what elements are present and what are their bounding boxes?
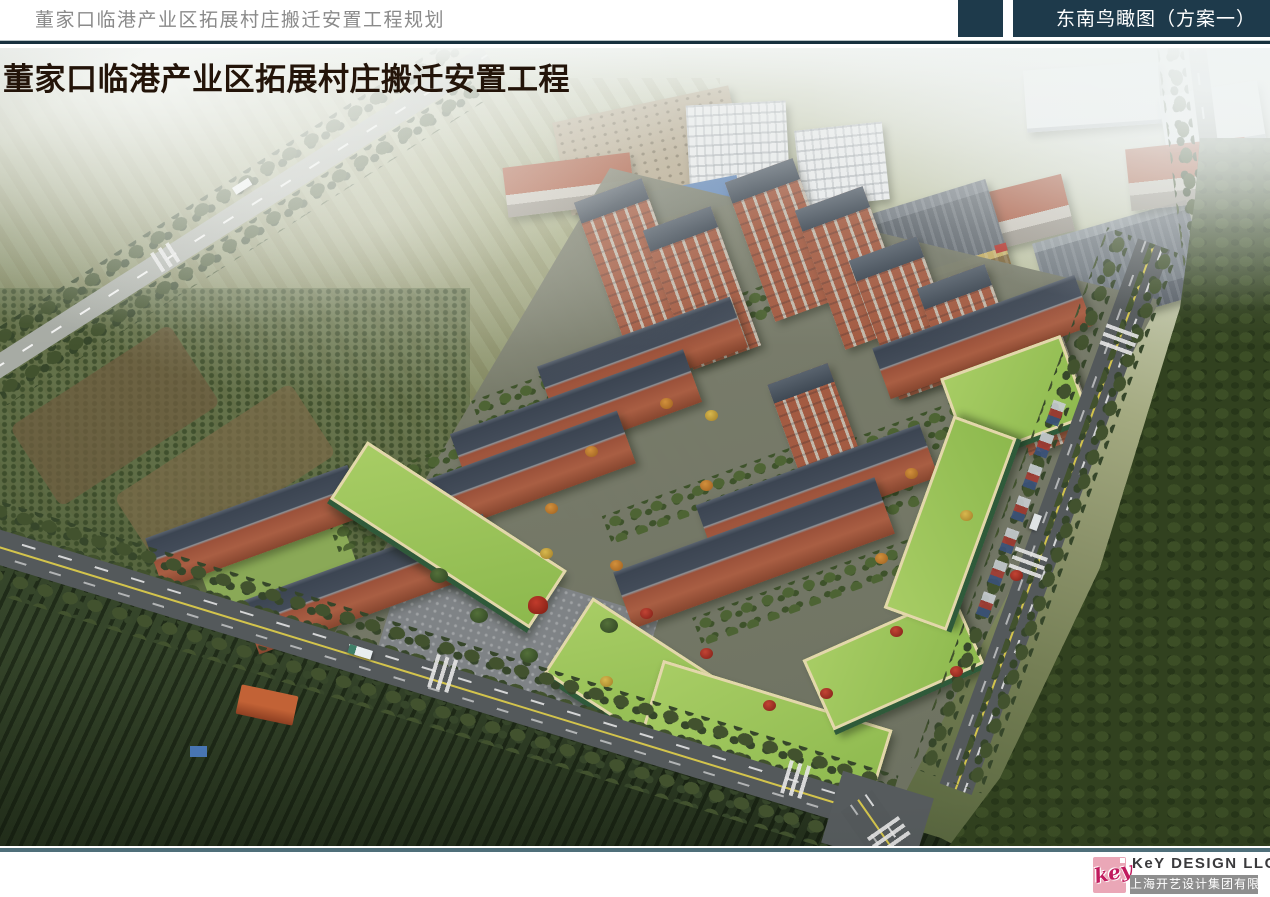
tree (700, 480, 713, 491)
header-accent-square (958, 0, 1003, 37)
tree (545, 503, 558, 514)
footer-rule (0, 848, 1270, 852)
tree (610, 560, 623, 571)
logo-word: key (1092, 858, 1129, 888)
tree (640, 608, 653, 619)
company-name-cn: 上海开艺设计集团有限公司 (1130, 875, 1258, 894)
tree (820, 688, 833, 699)
warehouse (1023, 61, 1162, 132)
page-title: 董家口临港产业区拓展村庄搬迁安置工程 (3, 54, 570, 99)
tree (520, 648, 538, 663)
view-label: 东南鸟瞰图（方案一） (1013, 0, 1270, 37)
tree (905, 468, 918, 479)
document-title: 董家口临港产业区拓展村庄搬迁安置工程规划 (35, 0, 445, 40)
tree (600, 618, 618, 633)
tree (470, 608, 488, 623)
entrance-gate-feature (528, 596, 548, 614)
tree (705, 410, 718, 421)
blue-shed (190, 746, 207, 757)
tree (540, 548, 553, 559)
tree (1010, 570, 1023, 581)
tree (700, 648, 713, 659)
presentation-slide: 董家口临港产业区拓展村庄搬迁安置工程规划 东南鸟瞰图（方案一） (0, 0, 1270, 897)
aerial-rendering: 董家口临港产业区拓展村庄搬迁安置工程 (0, 48, 1270, 846)
tree (763, 700, 776, 711)
company-name-en: KeY DESIGN LLC (1132, 855, 1262, 873)
tree (875, 553, 888, 564)
header-rule (0, 40, 1270, 44)
tree (960, 510, 973, 521)
tree (890, 626, 903, 637)
key-design-logo: key (1093, 857, 1126, 893)
tree (585, 446, 598, 457)
tree (660, 398, 673, 409)
tree (600, 676, 613, 687)
tree (950, 666, 963, 677)
tree (430, 568, 448, 583)
